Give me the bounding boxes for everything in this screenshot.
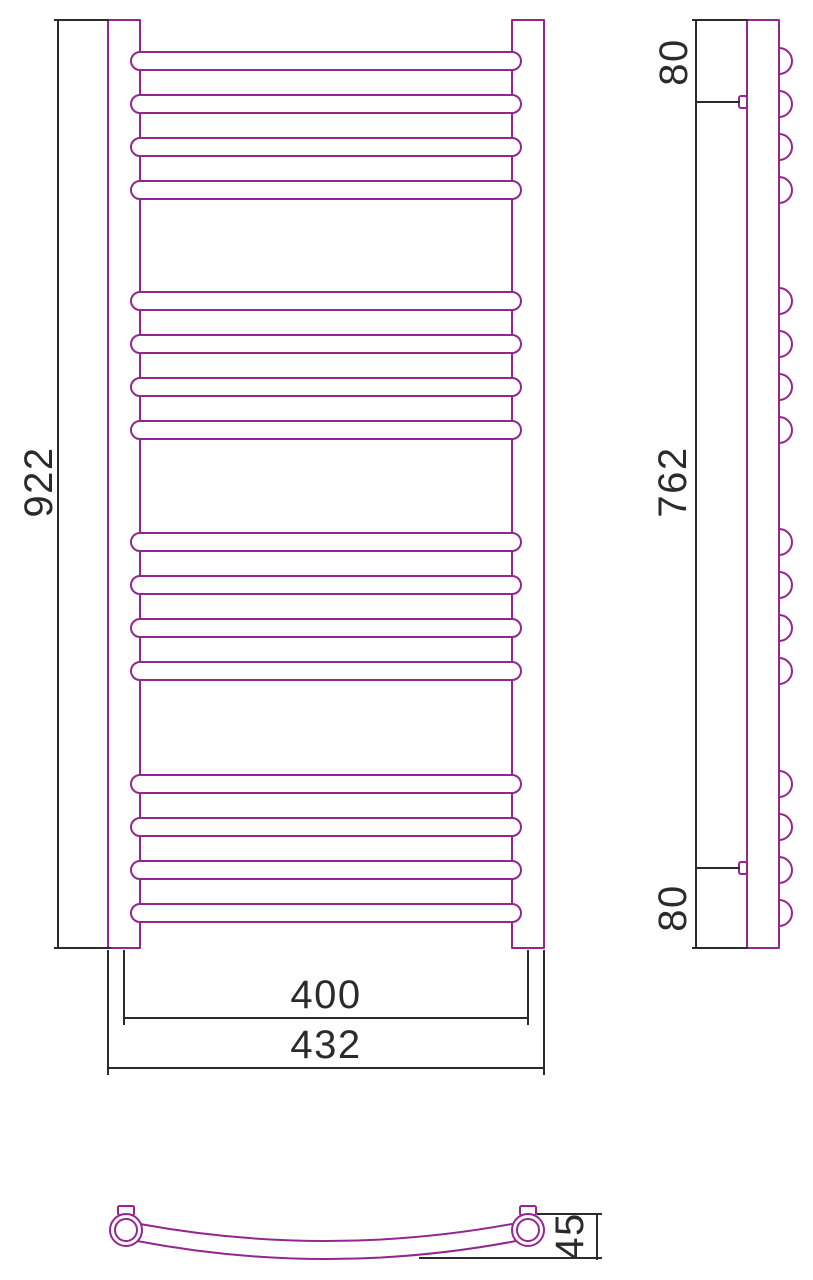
rail (131, 662, 521, 680)
bowed-rail-inner-curve (137, 1241, 516, 1259)
dim-label-overall-width: 432 (290, 1023, 361, 1067)
front-right-tube (512, 20, 544, 948)
bottom-view (110, 1206, 544, 1259)
rail (131, 95, 521, 113)
rail (131, 904, 521, 922)
rail (131, 138, 521, 156)
rail (131, 533, 521, 551)
rail-end (779, 615, 792, 641)
rail (131, 181, 521, 199)
rail (131, 421, 521, 439)
dim-label-bottom-offset: 80 (651, 884, 695, 932)
rail-end (779, 177, 792, 203)
dimension-lines (55, 20, 747, 1259)
rail (131, 52, 521, 70)
rail (131, 378, 521, 396)
dim-label-bracket-spacing: 762 (651, 446, 695, 517)
bowed-rail-outer-curve (140, 1224, 512, 1241)
dim-label-top-offset: 80 (652, 38, 696, 86)
rail-end (779, 91, 792, 117)
rail (131, 335, 521, 353)
side-tube (747, 20, 779, 948)
rail-end (779, 529, 792, 555)
towel-radiator-drawing: 922 400 432 80 762 80 45 (0, 0, 813, 1280)
rail-end (779, 48, 792, 74)
rail-end (779, 658, 792, 684)
rail (131, 292, 521, 310)
rail-end (779, 374, 792, 400)
rail-end (779, 814, 792, 840)
front-view (108, 20, 544, 948)
rail (131, 775, 521, 793)
dim-label-bow-depth: 45 (548, 1212, 592, 1260)
rail-end (779, 417, 792, 443)
tube-section-right-inner (517, 1219, 539, 1241)
dim-label-height: 922 (17, 446, 61, 517)
rail-end (779, 857, 792, 883)
wall-bracket-bottom (739, 862, 747, 874)
rail (131, 861, 521, 879)
rail-end (779, 134, 792, 160)
product-outlines (108, 20, 792, 1259)
rail-end (779, 900, 792, 926)
wall-bracket-top (739, 96, 747, 108)
technical-drawing-page: 922 400 432 80 762 80 45 (0, 0, 813, 1280)
front-left-tube (108, 20, 140, 948)
rail-end (779, 572, 792, 598)
rail-end (779, 331, 792, 357)
rail-end (779, 288, 792, 314)
rail-end (779, 771, 792, 797)
dim-label-rail-span: 400 (290, 973, 361, 1017)
rail (131, 619, 521, 637)
rail (131, 576, 521, 594)
rail (131, 818, 521, 836)
tube-section-left-inner (115, 1219, 137, 1241)
side-view (739, 20, 792, 948)
